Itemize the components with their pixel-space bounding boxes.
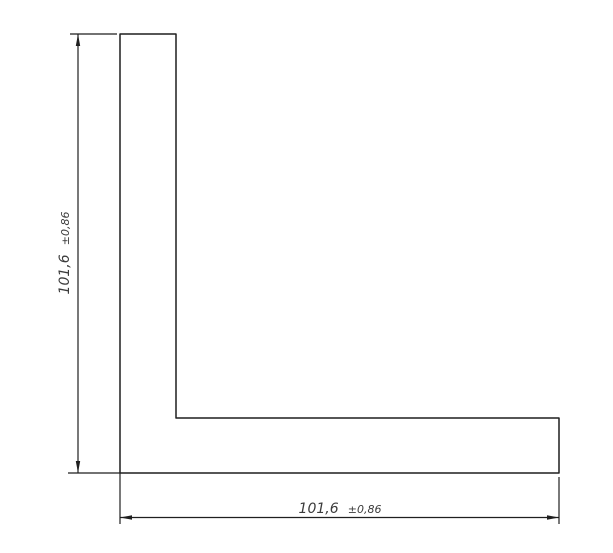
horizontal-dimension-value: 101,6 [299,501,339,517]
vertical-dimension-value: 101,6 [57,254,73,294]
vertical-dimension-tolerance: ±0,86 [59,212,72,246]
horizontal-dimension: 101,6 ±0,86 [120,473,559,524]
l-profile-outline [120,34,559,473]
vertical-dimension-label: 101,6 ±0,86 [54,212,73,295]
l-profile [120,34,559,473]
technical-drawing: 101,6 ±0,86 101,6 ±0,86 [0,0,613,553]
vertical-dimension: 101,6 ±0,86 [54,34,120,473]
horizontal-dimension-label: 101,6 ±0,86 [299,498,382,517]
drawing-canvas: 101,6 ±0,86 101,6 ±0,86 [0,0,613,553]
arrow-up-icon [76,34,80,46]
horizontal-dimension-tolerance: ±0,86 [348,503,382,516]
arrow-right-icon [547,515,559,519]
arrow-left-icon [120,515,132,519]
arrow-down-icon [76,461,80,473]
